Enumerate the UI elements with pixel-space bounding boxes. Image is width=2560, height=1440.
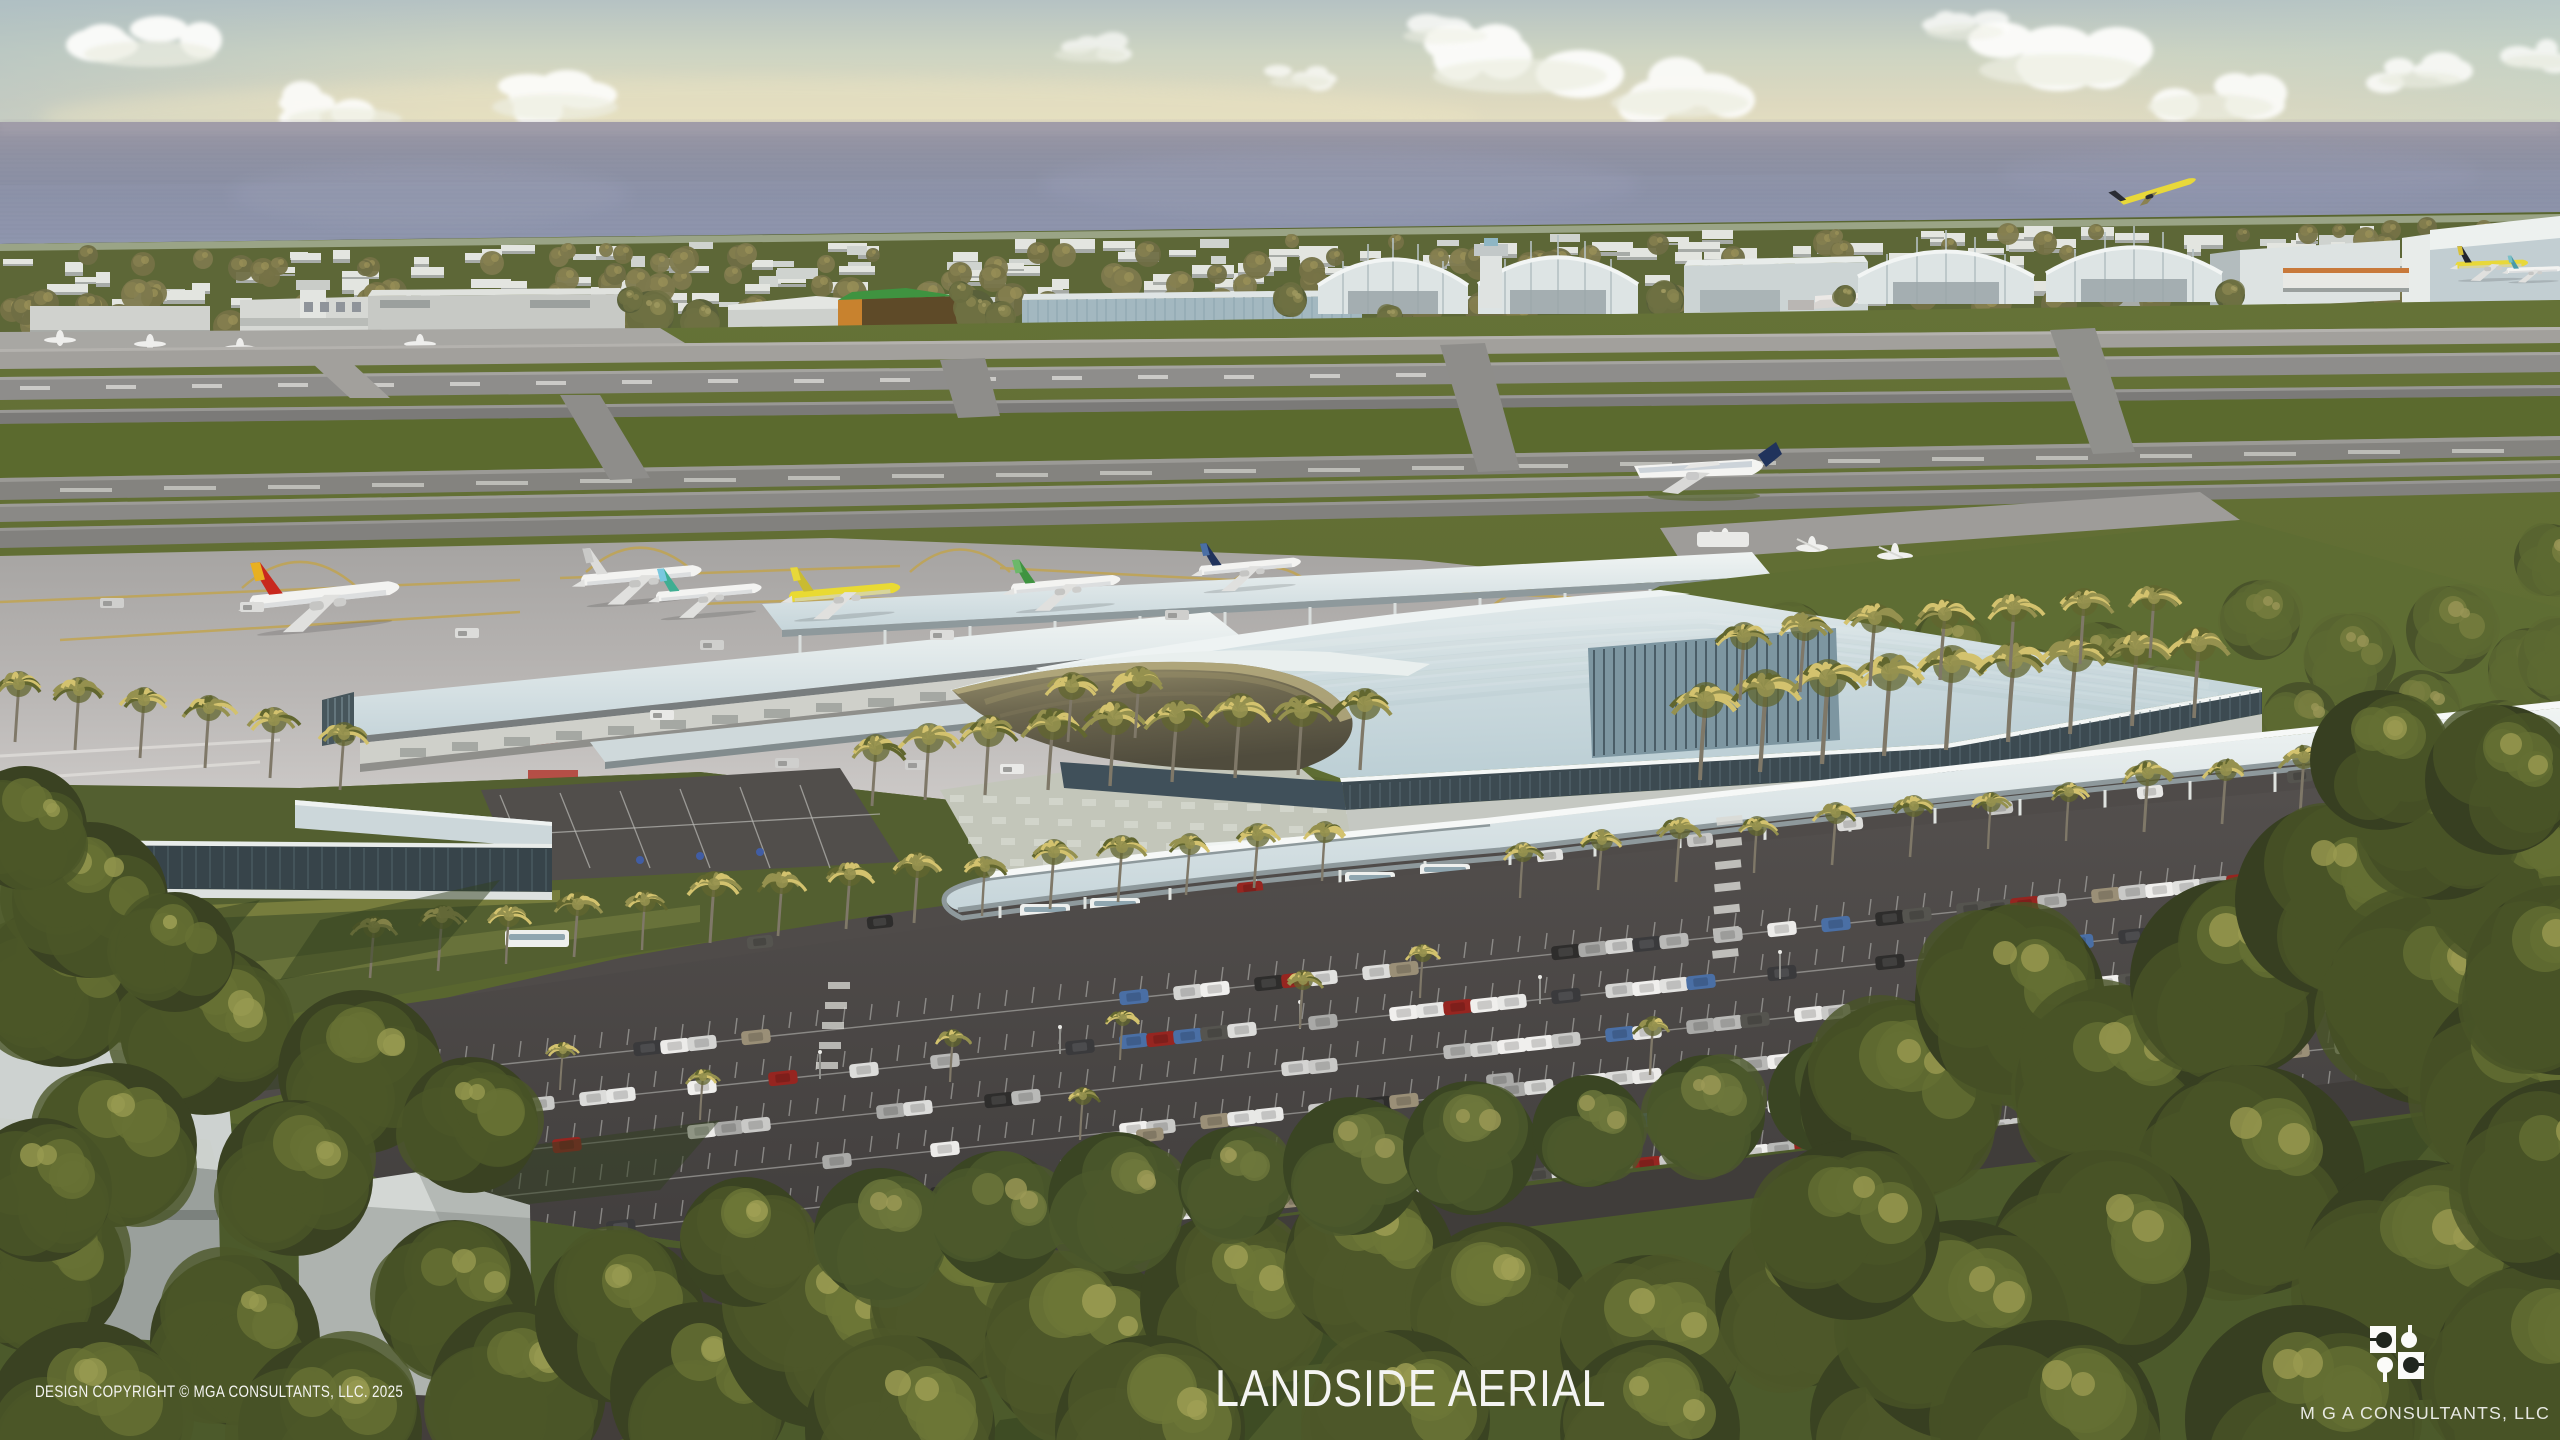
svg-text:DESIGN COPYRIGHT © MGA CONSULT: DESIGN COPYRIGHT © MGA CONSULTANTS, LLC.… xyxy=(35,1383,403,1402)
svg-text:LANDSIDE AERIAL: LANDSIDE AERIAL xyxy=(1215,1360,1606,1418)
svg-text:M G A CONSULTANTS, LLC: M G A CONSULTANTS, LLC xyxy=(2300,1403,2550,1423)
